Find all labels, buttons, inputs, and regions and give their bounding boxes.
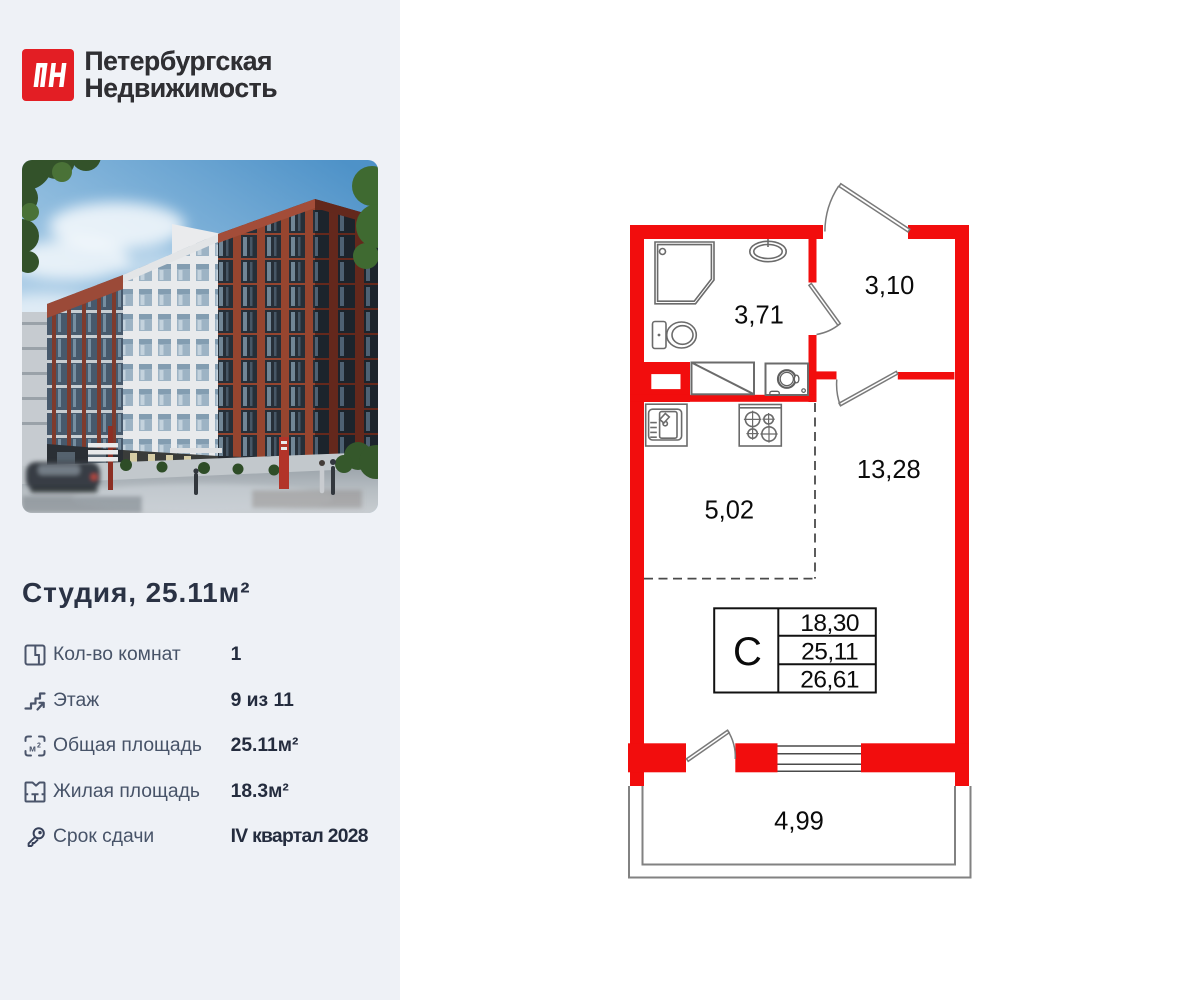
svg-text:м: м bbox=[29, 744, 36, 755]
svg-text:25,11: 25,11 bbox=[801, 638, 858, 665]
svg-text:3,71: 3,71 bbox=[734, 301, 784, 329]
svg-text:13,28: 13,28 bbox=[857, 456, 921, 484]
svg-text:2: 2 bbox=[37, 743, 41, 750]
svg-text:5,02: 5,02 bbox=[704, 497, 754, 525]
svg-text:26,61: 26,61 bbox=[800, 666, 859, 693]
svg-text:3,10: 3,10 bbox=[865, 272, 915, 300]
svg-text:С: С bbox=[733, 630, 762, 674]
svg-text:18,30: 18,30 bbox=[800, 610, 859, 637]
svg-text:4,99: 4,99 bbox=[774, 807, 824, 835]
